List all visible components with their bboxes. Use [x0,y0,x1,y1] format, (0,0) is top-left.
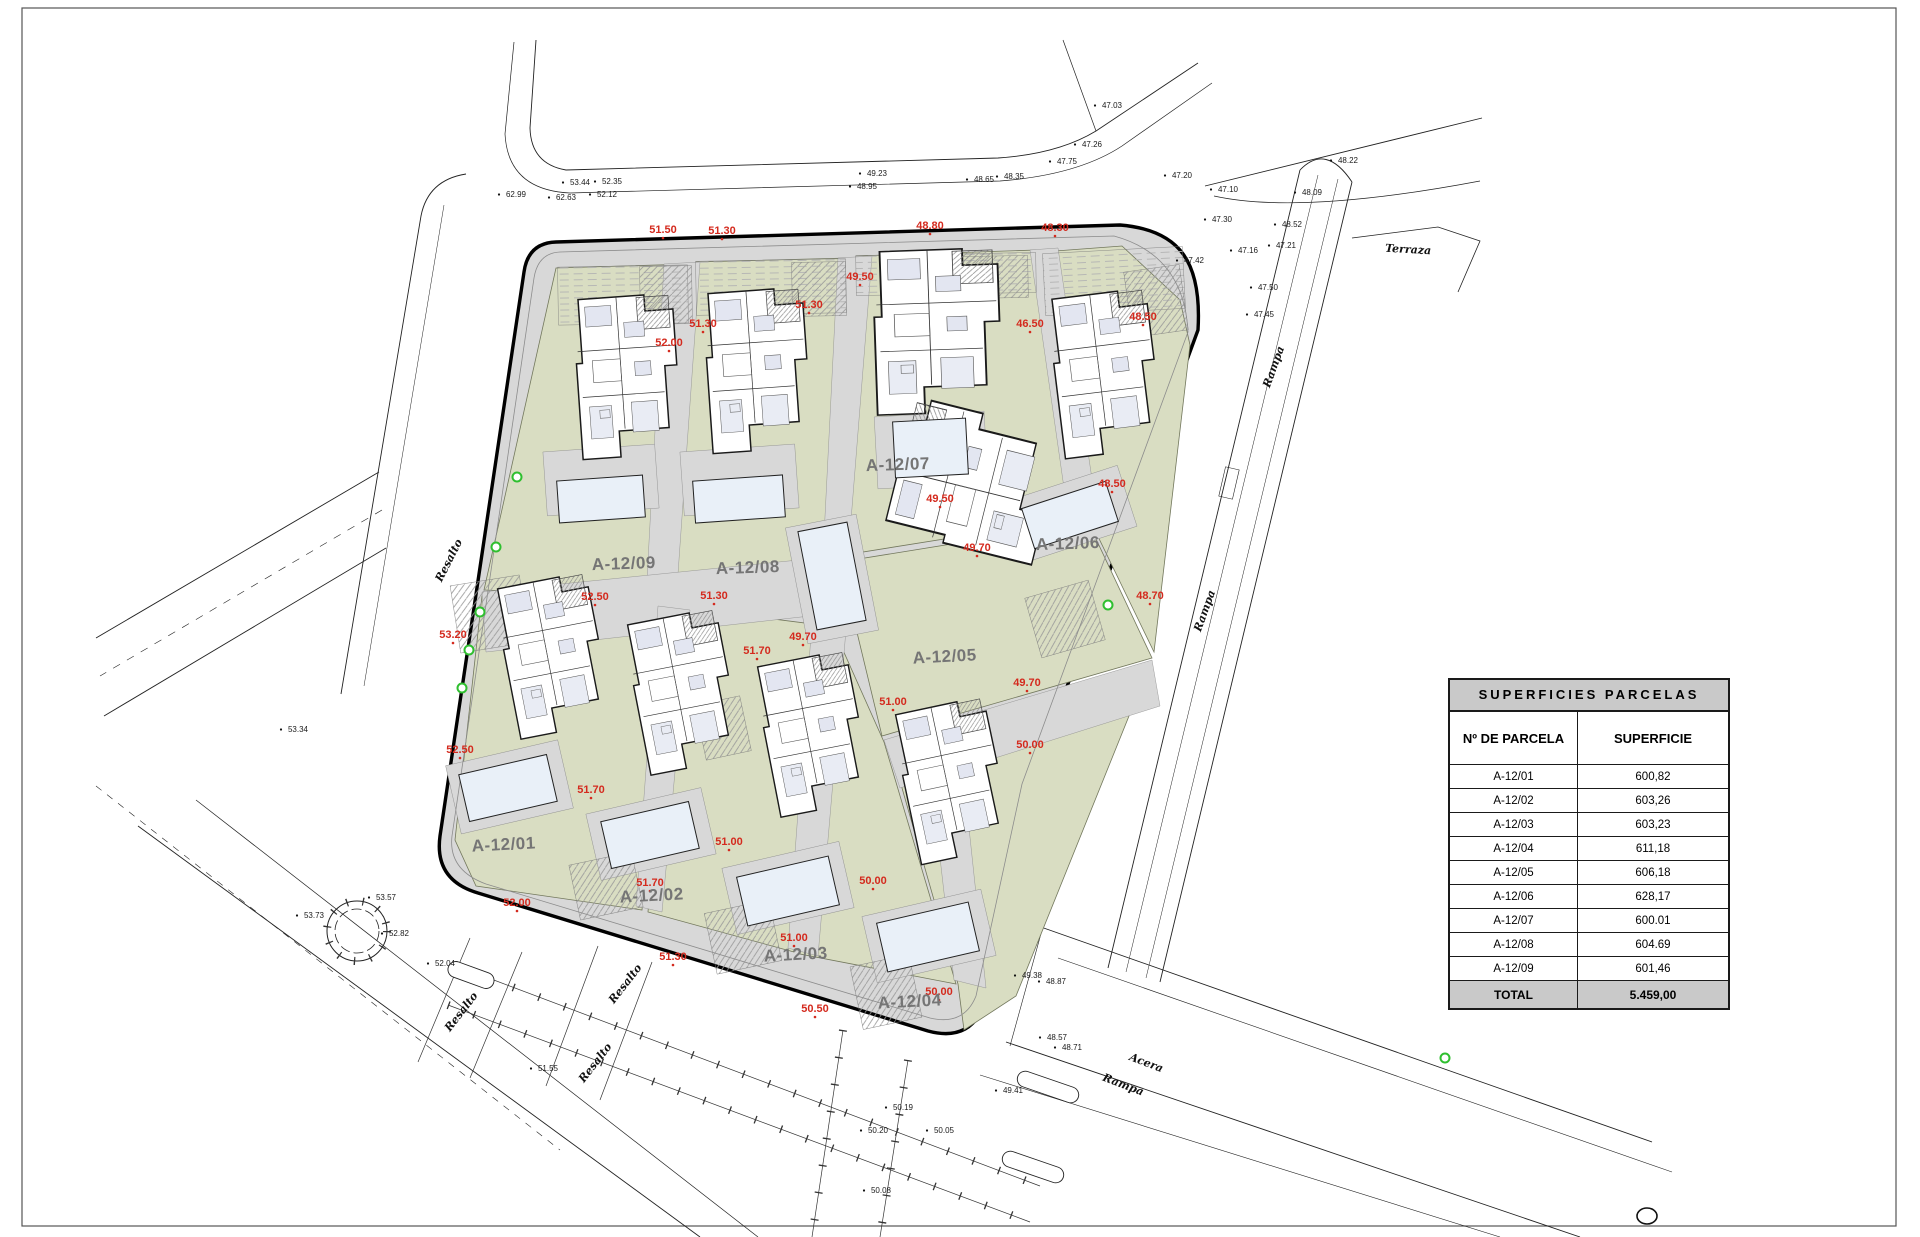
parcel-cell: A-12/05 [1450,861,1578,884]
elevation-label: 48.65 [974,175,995,184]
site-plan-drawing: 62.9962.6353.4452.3552.1249.2348.9548.65… [0,0,1920,1237]
table-row: A-12/07600.01 [1450,909,1728,933]
elevation-label: 53.44 [570,178,591,187]
red-dimension-label-point [668,350,671,353]
elevation-label: 48.71 [1062,1043,1083,1052]
superficie-cell: 600.01 [1578,909,1728,932]
elevation-label: 52.35 [602,177,623,186]
parcel-label: A-12/07 [866,454,931,475]
elevation-label-point [530,1067,532,1069]
superficie-cell: 603,26 [1578,789,1728,812]
superficie-cell: 603,23 [1578,813,1728,836]
red-dimension-label: 48.50 [1098,478,1126,490]
green-point-marker [476,608,485,617]
elevation-label-point [1250,286,1252,288]
red-dimension-label-point [756,658,759,661]
elevation-label-point [1176,259,1178,261]
red-dimension-label-point [452,642,455,645]
red-dimension-label: 49.70 [1013,677,1041,689]
red-dimension-label-point [1054,235,1057,238]
green-point-marker [458,684,467,693]
table-title: SUPERFICIES PARCELAS [1448,678,1730,712]
superficie-cell: 5.459,00 [1578,981,1728,1008]
red-dimension-label: 51.50 [649,224,677,236]
red-dimension-label-point [976,555,979,558]
elevation-label-point [1246,313,1248,315]
red-dimension-label: 51.70 [577,784,605,796]
red-dimension-label-point [1029,752,1032,755]
red-dimension-label: 46.50 [1016,318,1044,330]
red-dimension-label: 50.00 [859,875,887,887]
red-dimension-label: 51.30 [708,225,736,237]
elevation-label: 47.50 [1258,283,1279,292]
red-dimension-label: 51.30 [659,951,687,963]
elevation-label: 47.45 [1254,310,1275,319]
red-dimension-label-point [713,603,716,606]
superficie-cell: 628,17 [1578,885,1728,908]
red-dimension-label: 51.00 [780,932,808,944]
table-row: A-12/02603,26 [1450,789,1728,813]
elevation-label-point [885,1106,887,1108]
parcel-label: A-12/09 [592,553,657,574]
elevation-label: 50.05 [934,1126,955,1135]
elevation-label-point [368,896,370,898]
elevation-label-point [1204,218,1206,220]
elevation-label: 53.34 [288,725,309,734]
parcel-label: A-12/01 [471,833,536,855]
elevation-label: 52.04 [435,959,456,968]
table-row: A-12/09601,46 [1450,957,1728,981]
red-dimension-label: 48.50 [1129,311,1157,323]
elevation-label: 48.09 [1302,188,1323,197]
elevation-label-point [1074,143,1076,145]
elevation-label-point [1054,1046,1056,1048]
table-row: A-12/03603,23 [1450,813,1728,837]
table-row: A-12/06628,17 [1450,885,1728,909]
parcel-cell: A-12/07 [1450,909,1578,932]
red-dimension-label-point [1026,690,1029,693]
elevation-label-point [296,914,298,916]
elevation-label: 47.10 [1218,185,1239,194]
elevation-label-point [594,180,596,182]
red-dimension-label: 51.00 [715,836,743,848]
parcel-label: A-12/08 [716,557,781,578]
elevation-label-point [1164,174,1166,176]
red-dimension-label: 49.70 [789,631,817,643]
elevation-label: 50.20 [868,1126,889,1135]
elevation-label: 52.82 [389,929,410,938]
red-dimension-label-point [1142,324,1145,327]
elevation-label: 48.95 [857,182,878,191]
red-dimension-label: 51.70 [743,645,771,657]
street-name-label: Terraza [1385,242,1432,257]
elevation-label-point [1274,223,1276,225]
parcel-cell: A-12/04 [1450,837,1578,860]
red-dimension-label: 50.00 [1016,739,1044,751]
elevation-label-point [1210,188,1212,190]
parcel-label: A-12/04 [877,990,942,1012]
red-dimension-label: 53.20 [439,629,467,641]
site-plan-page: 62.9962.6353.4452.3552.1249.2348.9548.65… [0,0,1920,1237]
table-total-row: TOTAL5.459,00 [1450,981,1728,1008]
red-dimension-label-point [702,331,705,334]
elevation-label-point [427,962,429,964]
red-dimension-label-point [1149,603,1152,606]
elevation-label: 50.19 [893,1103,914,1112]
superficie-cell: 600,82 [1578,765,1728,788]
elevation-label-point [280,728,282,730]
elevation-label: 62.99 [506,190,527,199]
elevation-label: 48.87 [1046,977,1067,986]
superficie-cell: 604.69 [1578,933,1728,956]
elevation-label-point [1039,1036,1041,1038]
elevation-label-point [860,1129,862,1131]
elevation-label-point [381,932,383,934]
elevation-label-point [1038,980,1040,982]
elevation-label-point [1049,160,1051,162]
red-dimension-label: 51.30 [689,318,717,330]
table-row: A-12/01600,82 [1450,765,1728,789]
elevation-label-point [1268,244,1270,246]
red-dimension-label: 50.50 [801,1003,829,1015]
elevation-label: 47.21 [1276,241,1297,250]
red-dimension-label: 52.50 [581,591,609,603]
elevation-label: 48.52 [1282,220,1303,229]
red-dimension-label-point [1029,331,1032,334]
elevation-label: 47.42 [1184,256,1205,265]
col-header-parcela: Nº DE PARCELA [1450,712,1578,764]
red-dimension-label: 49.50 [846,271,874,283]
red-dimension-label-point [594,604,597,607]
red-dimension-label-point [1111,491,1114,494]
elevation-label: 47.03 [1102,101,1123,110]
elevation-label: 47.16 [1238,246,1259,255]
red-dimension-label: 48.70 [1136,590,1164,602]
red-dimension-label-point [662,237,665,240]
red-dimension-label: 49.50 [926,493,954,505]
elevation-label-point [996,175,998,177]
red-dimension-label-point [814,1016,817,1019]
elevation-label: 62.63 [556,193,577,202]
green-point-marker [1441,1054,1450,1063]
red-dimension-label-point [721,238,724,241]
parcel-cell: A-12/06 [1450,885,1578,908]
table-row: A-12/08604.69 [1450,933,1728,957]
red-dimension-label-point [590,797,593,800]
elevation-label-point [1294,191,1296,193]
red-dimension-label-point [672,964,675,967]
superficie-cell: 606,18 [1578,861,1728,884]
parcel-label: A-12/05 [912,645,977,667]
red-dimension-label-point [859,284,862,287]
superficie-cell: 601,46 [1578,957,1728,980]
red-dimension-label-point [802,644,805,647]
table-row: A-12/05606,18 [1450,861,1728,885]
elevation-label: 51.55 [538,1064,559,1073]
parcel-cell: A-12/08 [1450,933,1578,956]
green-point-marker [492,543,501,552]
elevation-label: 48.57 [1047,1033,1068,1042]
elevation-label: 49.38 [1022,971,1043,980]
elevation-label-point [589,193,591,195]
red-dimension-label: 51.30 [795,299,823,311]
red-dimension-label: 52.00 [503,897,531,909]
parcel-label: A-12/02 [619,884,684,906]
red-dimension-label: 48.30 [1041,222,1069,234]
red-dimension-label-point [929,233,932,236]
superficie-cell: 611,18 [1578,837,1728,860]
superficies-table: SUPERFICIES PARCELAS Nº DE PARCELA SUPER… [1448,678,1730,1010]
elevation-label: 47.26 [1082,140,1103,149]
elevation-label-point [1014,974,1016,976]
parcel-cell: A-12/03 [1450,813,1578,836]
elevation-label-point [995,1089,997,1091]
table-row: A-12/04611,18 [1450,837,1728,861]
elevation-label: 48.35 [1004,172,1025,181]
elevation-label: 53.57 [376,893,397,902]
elevation-label: 49.41 [1003,1086,1024,1095]
parcel-cell: A-12/01 [1450,765,1578,788]
elevation-label: 47.20 [1172,171,1193,180]
elevation-label: 47.30 [1212,215,1233,224]
elevation-label: 48.22 [1338,156,1359,165]
red-dimension-label-point [808,312,811,315]
red-dimension-label: 51.30 [700,590,728,602]
parcel-cell: A-12/09 [1450,957,1578,980]
red-dimension-label: 52.00 [655,337,683,349]
red-dimension-label: 52.50 [446,744,474,756]
elevation-label-point [1330,159,1332,161]
red-dimension-label: 49.70 [963,542,991,554]
green-point-marker [465,646,474,655]
red-dimension-label-point [728,849,731,852]
elevation-label: 49.23 [867,169,888,178]
table-header-row: Nº DE PARCELA SUPERFICIE [1450,712,1728,765]
elevation-label-point [548,196,550,198]
green-point-marker [1104,601,1113,610]
elevation-label-point [1094,104,1096,106]
red-dimension-label-point [872,888,875,891]
elevation-label: 53.73 [304,911,325,920]
parcel-label: A-12/03 [763,943,828,965]
elevation-label: 52.12 [597,190,618,199]
red-dimension-label: 51.00 [879,696,907,708]
elevation-label-point [849,185,851,187]
elevation-label-point [562,181,564,183]
red-dimension-label-point [516,910,519,913]
elevation-label-point [498,193,500,195]
red-dimension-label-point [939,506,942,509]
elevation-label: 50.08 [871,1186,892,1195]
parcel-cell: A-12/02 [1450,789,1578,812]
parcel-cell: TOTAL [1450,981,1578,1008]
col-header-superficie: SUPERFICIE [1578,712,1728,764]
red-dimension-label-point [892,709,895,712]
elevation-label-point [966,178,968,180]
red-dimension-label: 48.80 [916,220,944,232]
elevation-label-point [1230,249,1232,251]
elevation-label: 47.75 [1057,157,1078,166]
elevation-label-point [926,1129,928,1131]
green-point-marker [513,473,522,482]
elevation-label-point [859,172,861,174]
elevation-label-point [863,1189,865,1191]
parcel-label: A-12/06 [1036,533,1101,554]
red-dimension-label-point [459,757,462,760]
